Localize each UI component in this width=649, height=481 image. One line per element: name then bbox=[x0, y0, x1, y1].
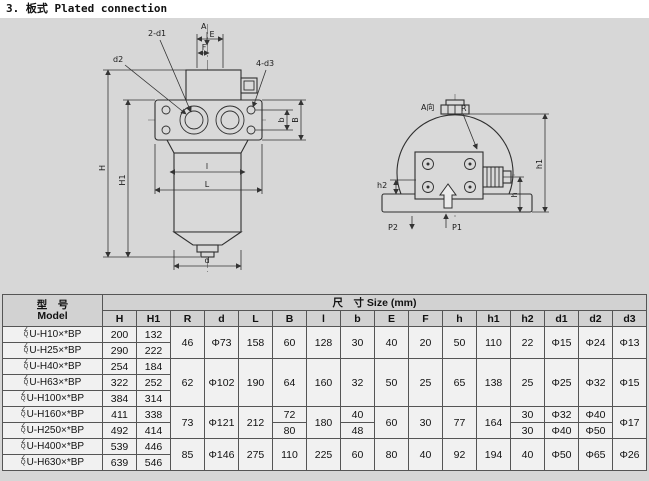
cell: Φ32 bbox=[545, 407, 579, 423]
cell: 60 bbox=[341, 439, 375, 471]
model-name: U-H10×*BP bbox=[29, 329, 81, 340]
cell: Φ40 bbox=[579, 407, 613, 423]
port-label-P1: P1 bbox=[452, 223, 462, 232]
col-header: l bbox=[307, 311, 341, 327]
series-prefix: ZQ bbox=[21, 408, 26, 418]
cell: 314 bbox=[137, 391, 171, 407]
leader-label-2-d1: 2-d1 bbox=[148, 29, 166, 38]
catalog-page: { "title": "3. 板式 Plated connection", "d… bbox=[0, 0, 649, 481]
cell: 22 bbox=[511, 327, 545, 359]
model-name: U-H630×*BP bbox=[27, 457, 85, 468]
model-cell: ZQU-H400×*BP bbox=[3, 439, 103, 455]
cell: Φ40 bbox=[545, 423, 579, 439]
model-header-en: Model bbox=[3, 311, 102, 322]
cell: Φ65 bbox=[579, 439, 613, 471]
cell: 30 bbox=[511, 407, 545, 423]
table-row: ZQU-H400×*BP 539 446 85 Φ146 275 110 225… bbox=[3, 439, 647, 455]
cell: 80 bbox=[375, 439, 409, 471]
indicator-cap bbox=[186, 70, 241, 100]
cell: 60 bbox=[273, 327, 307, 359]
model-column-header: 型 号 Model bbox=[3, 295, 103, 327]
cell: 446 bbox=[137, 439, 171, 455]
cap-side-port bbox=[241, 78, 257, 93]
cell: 80 bbox=[273, 423, 307, 439]
col-header: L bbox=[239, 311, 273, 327]
col-header: H1 bbox=[137, 311, 171, 327]
cell: Φ121 bbox=[205, 407, 239, 439]
dim-label-L: L bbox=[205, 180, 210, 189]
cell: 25 bbox=[511, 359, 545, 407]
cell: Φ50 bbox=[545, 439, 579, 471]
model-cell: ZQU-H160×*BP bbox=[3, 407, 103, 423]
cell: 50 bbox=[443, 327, 477, 359]
side-knob bbox=[483, 167, 503, 187]
model-name: U-H400×*BP bbox=[27, 441, 85, 452]
cell: 40 bbox=[511, 439, 545, 471]
col-header: B bbox=[273, 311, 307, 327]
cell: 40 bbox=[409, 439, 443, 471]
cell: 128 bbox=[307, 327, 341, 359]
cell: 414 bbox=[137, 423, 171, 439]
cell: Φ15 bbox=[545, 327, 579, 359]
cell: Φ17 bbox=[613, 407, 647, 439]
table-row: ZQU-H160×*BP 411 338 73 Φ121 212 72 180 … bbox=[3, 407, 647, 423]
cell: 338 bbox=[137, 407, 171, 423]
model-name: U-H63×*BP bbox=[29, 377, 81, 388]
series-prefix: ZQ bbox=[24, 376, 29, 386]
cell: 539 bbox=[103, 439, 137, 455]
cell: 46 bbox=[171, 327, 205, 359]
cell: 252 bbox=[137, 375, 171, 391]
technical-drawing-area: A E F 2-d1 d2 4-d3 H H1 b B l bbox=[0, 18, 649, 292]
cell: Φ50 bbox=[579, 423, 613, 439]
cell: 222 bbox=[137, 343, 171, 359]
cell: 110 bbox=[477, 327, 511, 359]
table-header-row: 型 号 Model 尺 寸 Size (mm) bbox=[3, 295, 647, 311]
cell: 254 bbox=[103, 359, 137, 375]
cell: 40 bbox=[375, 327, 409, 359]
col-header: F bbox=[409, 311, 443, 327]
dim-label-d: d bbox=[204, 256, 209, 265]
table-row: ZQU-H40×*BP 254 184 62 Φ102 190 64 160 3… bbox=[3, 359, 647, 375]
cell: 190 bbox=[239, 359, 273, 407]
model-cell: ZQU-H100×*BP bbox=[3, 391, 103, 407]
cell: 30 bbox=[511, 423, 545, 439]
cell: 30 bbox=[409, 407, 443, 439]
cell: Φ146 bbox=[205, 439, 239, 471]
cell: 92 bbox=[443, 439, 477, 471]
cell: 225 bbox=[307, 439, 341, 471]
col-header: E bbox=[375, 311, 409, 327]
leader-label-d2: d2 bbox=[113, 55, 123, 64]
cell: 65 bbox=[443, 359, 477, 407]
cell: Φ24 bbox=[579, 327, 613, 359]
dim-label-B: B bbox=[291, 117, 300, 123]
cell: 25 bbox=[409, 359, 443, 407]
series-prefix: ZQ bbox=[24, 344, 29, 354]
model-cell: ZQU-H10×*BP bbox=[3, 327, 103, 343]
page-title: 3. 板式 Plated connection bbox=[0, 0, 649, 18]
cell: 160 bbox=[307, 359, 341, 407]
table-row: ZQU-H10×*BP 200 132 46 Φ73 158 60 128 30… bbox=[3, 327, 647, 343]
cell: 72 bbox=[273, 407, 307, 423]
cell: 20 bbox=[409, 327, 443, 359]
dim-label-l: l bbox=[206, 162, 208, 171]
dim-label-E: E bbox=[209, 30, 214, 39]
model-name: U-H40×*BP bbox=[29, 361, 81, 372]
cell: 50 bbox=[375, 359, 409, 407]
col-header: d2 bbox=[579, 311, 613, 327]
cell: Φ13 bbox=[613, 327, 647, 359]
cell: 164 bbox=[477, 407, 511, 439]
cell: 132 bbox=[137, 327, 171, 343]
cell: Φ102 bbox=[205, 359, 239, 407]
series-prefix: ZQ bbox=[21, 392, 26, 402]
cell: 110 bbox=[273, 439, 307, 471]
front-view: A E F 2-d1 d2 4-d3 H H1 b B l bbox=[98, 22, 306, 272]
cell: 322 bbox=[103, 375, 137, 391]
cell: 411 bbox=[103, 407, 137, 423]
col-header: b bbox=[341, 311, 375, 327]
model-cell: ZQU-H250×*BP bbox=[3, 423, 103, 439]
cell: 85 bbox=[171, 439, 205, 471]
drain-plug bbox=[197, 245, 218, 252]
cell: 194 bbox=[477, 439, 511, 471]
dim-label-h2: h2 bbox=[377, 181, 387, 190]
cell: Φ26 bbox=[613, 439, 647, 471]
dim-label-F: F bbox=[202, 43, 207, 52]
cell: Φ32 bbox=[579, 359, 613, 407]
col-header: d3 bbox=[613, 311, 647, 327]
col-header: H bbox=[103, 311, 137, 327]
view-a-label: A向 bbox=[421, 102, 434, 112]
cell: 32 bbox=[341, 359, 375, 407]
series-prefix: ZQ bbox=[24, 328, 29, 338]
technical-drawing: A E F 2-d1 d2 4-d3 H H1 b B l bbox=[0, 18, 649, 292]
cell: 158 bbox=[239, 327, 273, 359]
cell: 290 bbox=[103, 343, 137, 359]
series-prefix: ZQ bbox=[24, 360, 29, 370]
model-cell: ZQU-H630×*BP bbox=[3, 455, 103, 471]
cell: 73 bbox=[171, 407, 205, 439]
model-header-cn: 型 号 bbox=[3, 300, 102, 311]
size-header: 尺 寸 Size (mm) bbox=[103, 295, 647, 311]
section-arrow-label: A bbox=[201, 22, 207, 31]
dim-label-h1: h1 bbox=[535, 159, 544, 169]
model-cell: ZQU-H63×*BP bbox=[3, 375, 103, 391]
cell: 546 bbox=[137, 455, 171, 471]
model-name: U-H250×*BP bbox=[27, 425, 85, 436]
cell: 40 bbox=[341, 407, 375, 423]
cell: 30 bbox=[341, 327, 375, 359]
dim-label-H: H bbox=[98, 165, 107, 171]
dim-label-H1: H1 bbox=[118, 174, 127, 185]
col-header: d bbox=[205, 311, 239, 327]
series-prefix: ZQ bbox=[21, 440, 26, 450]
cell: Φ25 bbox=[545, 359, 579, 407]
cell: 492 bbox=[103, 423, 137, 439]
col-header: R bbox=[171, 311, 205, 327]
col-header: h bbox=[443, 311, 477, 327]
cell: Φ73 bbox=[205, 327, 239, 359]
cell: 212 bbox=[239, 407, 273, 439]
head-flange bbox=[155, 100, 262, 140]
cell: 384 bbox=[103, 391, 137, 407]
leader-label-R: R bbox=[461, 104, 467, 113]
dim-label-h: h bbox=[510, 192, 519, 197]
cell: 77 bbox=[443, 407, 477, 439]
cell: 60 bbox=[375, 407, 409, 439]
dim-label-b: b bbox=[277, 117, 286, 122]
cell: 275 bbox=[239, 439, 273, 471]
cell: 180 bbox=[307, 407, 341, 439]
series-prefix: ZQ bbox=[21, 456, 26, 466]
cell: 64 bbox=[273, 359, 307, 407]
cell: 200 bbox=[103, 327, 137, 343]
model-name: U-H160×*BP bbox=[27, 409, 85, 420]
port-label-P2: P2 bbox=[388, 223, 398, 232]
model-name: U-H25×*BP bbox=[29, 345, 81, 356]
cell: 184 bbox=[137, 359, 171, 375]
cell: 138 bbox=[477, 359, 511, 407]
dimension-table: 型 号 Model 尺 寸 Size (mm) H H1 R d L B l b… bbox=[2, 294, 647, 471]
col-header: h1 bbox=[477, 311, 511, 327]
model-cell: ZQU-H25×*BP bbox=[3, 343, 103, 359]
cell: 639 bbox=[103, 455, 137, 471]
col-header: d1 bbox=[545, 311, 579, 327]
leader-label-4-d3: 4-d3 bbox=[256, 59, 274, 68]
col-header: h2 bbox=[511, 311, 545, 327]
cell: Φ15 bbox=[613, 359, 647, 407]
cell: 48 bbox=[341, 423, 375, 439]
series-prefix: ZQ bbox=[21, 424, 26, 434]
model-name: U-H100×*BP bbox=[27, 393, 85, 404]
cell: 62 bbox=[171, 359, 205, 407]
model-cell: ZQU-H40×*BP bbox=[3, 359, 103, 375]
side-view-a: A向 R h2 h h1 P1 P2 bbox=[377, 94, 549, 232]
